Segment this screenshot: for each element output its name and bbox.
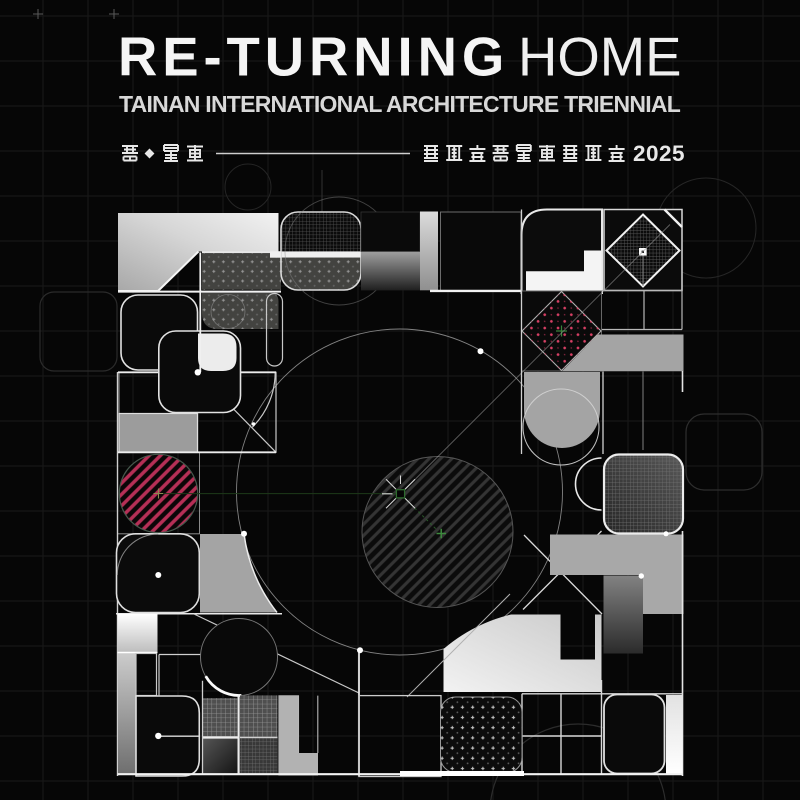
svg-text:RE-TURNING: RE-TURNING — [118, 27, 509, 88]
svg-text:2025: 2025 — [633, 141, 685, 166]
svg-text:TAINAN INTERNATIONAL ARCHITECT: TAINAN INTERNATIONAL ARCHITECTURE TRIENN… — [119, 91, 681, 117]
svg-text:HOME: HOME — [518, 27, 682, 88]
